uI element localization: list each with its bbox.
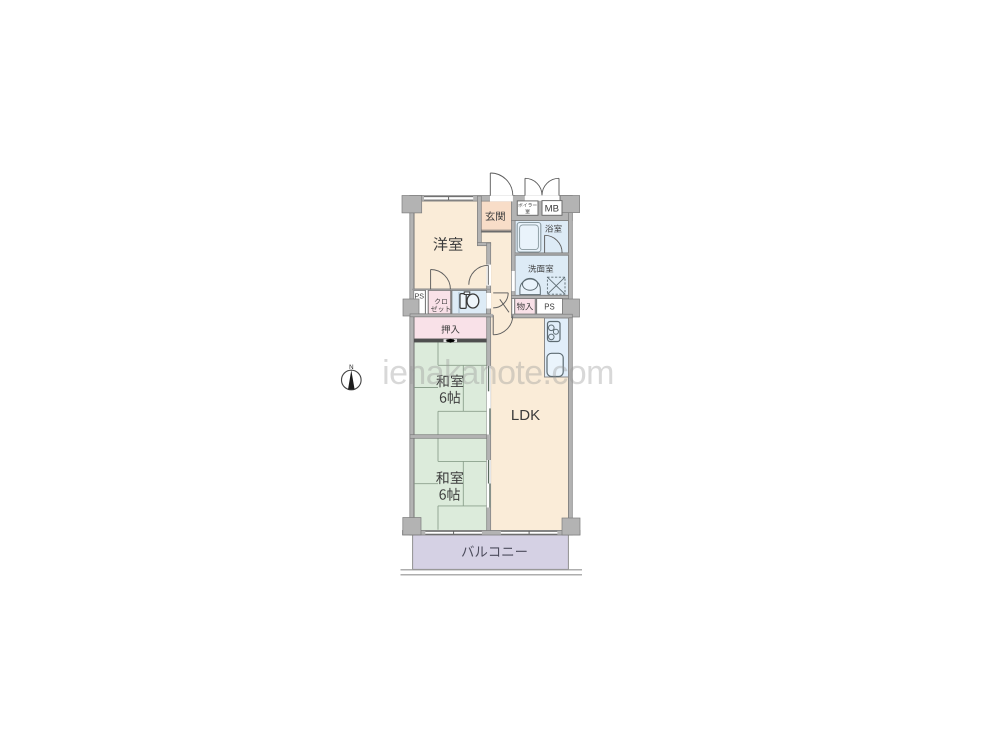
svg-text:ienakanote.com: ienakanote.com (382, 354, 614, 392)
svg-text:N: N (349, 364, 353, 371)
svg-text:PS: PS (544, 302, 554, 311)
svg-text:MB: MB (545, 203, 559, 214)
svg-text:LDK: LDK (511, 407, 540, 424)
